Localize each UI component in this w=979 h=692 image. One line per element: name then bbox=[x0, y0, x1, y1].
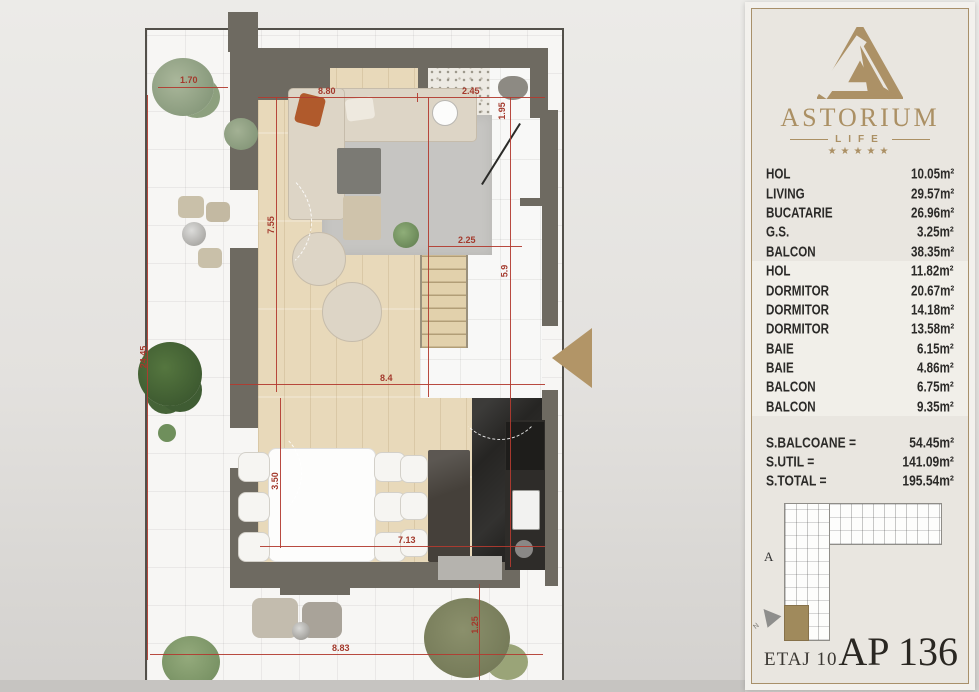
door-swing-arc bbox=[455, 350, 545, 440]
floor-label: ETAJ 10 bbox=[764, 649, 838, 671]
dimension-label: 7.13 bbox=[398, 535, 416, 545]
coffee-table-light bbox=[343, 196, 381, 240]
star-rating: ★★★★★ bbox=[752, 146, 968, 157]
entrance-arrow-icon bbox=[552, 328, 592, 388]
dimension-line bbox=[260, 546, 545, 547]
dimension-label: 8.83 bbox=[332, 643, 350, 653]
dimension-label: 3.50 bbox=[270, 472, 280, 490]
dimension-label: 5.9 bbox=[499, 265, 509, 278]
room-area: 14.18m² bbox=[911, 301, 954, 317]
room-area: 20.67m² bbox=[911, 282, 954, 298]
room-label: LIVING bbox=[766, 185, 805, 201]
wall bbox=[540, 110, 558, 206]
dimension-line bbox=[147, 95, 148, 660]
total-value: 195.54m² bbox=[902, 471, 954, 488]
dimension-label: 2.45 bbox=[462, 86, 480, 96]
armchair bbox=[322, 282, 382, 342]
dimension-label: 1.95 bbox=[497, 102, 507, 120]
dimension-label: 2.25 bbox=[458, 235, 476, 245]
total-label: S.TOTAL = bbox=[766, 471, 827, 488]
total-value: 54.45m² bbox=[909, 434, 954, 451]
wall bbox=[280, 585, 350, 595]
wall bbox=[330, 48, 548, 68]
rule-right bbox=[892, 139, 930, 140]
logo-triangle-icon bbox=[817, 27, 903, 99]
room-row: BALCON6.75m² bbox=[752, 377, 968, 396]
dimension-line bbox=[276, 97, 277, 392]
room-area: 26.96m² bbox=[911, 205, 954, 221]
room-area: 11.82m² bbox=[911, 263, 954, 279]
island-chair bbox=[400, 492, 428, 520]
dimension-line bbox=[428, 246, 522, 247]
room-area: 38.35m² bbox=[911, 243, 954, 259]
dimension-line bbox=[258, 97, 545, 98]
floorplan-page: 1.70 8.80 2.45 1.95 24.45 7.55 2.25 5.9 … bbox=[0, 0, 979, 692]
room-label: BALCON bbox=[766, 243, 816, 259]
dimension-line bbox=[158, 87, 228, 88]
room-label: BAIE bbox=[766, 360, 794, 376]
bathroom-sink bbox=[432, 100, 458, 126]
room-row: BALCON9.35m² bbox=[752, 397, 968, 416]
dimension-label: 1.25 bbox=[470, 616, 480, 634]
room-row: DORMITOR14.18m² bbox=[752, 300, 968, 319]
logo bbox=[752, 27, 968, 99]
dimension-line bbox=[150, 654, 543, 655]
stove bbox=[515, 540, 533, 558]
room-row: BAIE6.15m² bbox=[752, 339, 968, 358]
pillow bbox=[345, 96, 376, 122]
bush bbox=[424, 598, 510, 678]
room-row: HOL11.82m² bbox=[752, 261, 968, 280]
room-label: BAIE bbox=[766, 340, 794, 356]
wall bbox=[542, 206, 558, 326]
coffee-table-dark bbox=[337, 148, 381, 194]
floorplan-canvas: 1.70 8.80 2.45 1.95 24.45 7.55 2.25 5.9 … bbox=[0, 0, 745, 692]
total-row: S.BALCOANE =54.45m² bbox=[752, 433, 968, 452]
island-chair bbox=[400, 455, 428, 483]
room-row: LIVING29.57m² bbox=[752, 183, 968, 202]
room-row: BUCATARIE26.96m² bbox=[752, 203, 968, 222]
rule-left bbox=[790, 139, 828, 140]
room-label: HOL bbox=[766, 166, 791, 182]
dimension-line bbox=[510, 97, 511, 567]
total-label: S.BALCOANE = bbox=[766, 434, 856, 451]
room-row: BAIE4.86m² bbox=[752, 358, 968, 377]
north-arrow-icon bbox=[757, 603, 782, 628]
info-panel-frame: ASTORIUM LIFE ★★★★★ HOL10.05m² LIVING29.… bbox=[751, 8, 969, 684]
room-area: 9.35m² bbox=[917, 398, 954, 414]
door-swing-arc bbox=[200, 165, 312, 277]
apartment-label: AP 136 bbox=[838, 628, 958, 675]
brand-subtitle: LIFE bbox=[752, 134, 968, 145]
room-row: BALCON38.35m² bbox=[752, 242, 968, 261]
dimension-label: 24.45 bbox=[138, 346, 148, 369]
dimension-label: 8.4 bbox=[380, 373, 393, 383]
kitchen-sink bbox=[512, 490, 540, 530]
room-area: 4.86m² bbox=[917, 360, 954, 376]
room-label: DORMITOR bbox=[766, 282, 829, 298]
room-label: BUCATARIE bbox=[766, 205, 833, 221]
total-value: 141.09m² bbox=[902, 452, 954, 469]
room-group-1: HOL10.05m² LIVING29.57m² BUCATARIE26.96m… bbox=[752, 164, 968, 261]
total-label: S.UTIL = bbox=[766, 452, 814, 469]
dimension-label: 7.55 bbox=[266, 216, 276, 234]
tree bbox=[224, 118, 258, 150]
room-label: BALCON bbox=[766, 398, 816, 414]
wall bbox=[228, 12, 258, 52]
room-row: G.S.3.25m² bbox=[752, 222, 968, 241]
room-area: 13.58m² bbox=[911, 321, 954, 337]
brand-sub-label: LIFE bbox=[835, 134, 885, 145]
door-swing-arc bbox=[205, 425, 302, 522]
minimap-highlighted-unit bbox=[784, 605, 809, 641]
dimension-tick bbox=[417, 93, 418, 102]
dimension-label: 8.80 bbox=[318, 86, 336, 96]
total-row: S.UTIL =141.09m² bbox=[752, 452, 968, 471]
room-row: DORMITOR13.58m² bbox=[752, 319, 968, 338]
small-plant bbox=[158, 424, 176, 442]
dimension-line bbox=[428, 97, 429, 397]
dimension-line bbox=[479, 584, 480, 692]
brand-name: ASTORIUM bbox=[752, 103, 968, 133]
room-list: HOL10.05m² LIVING29.57m² BUCATARIE26.96m… bbox=[752, 164, 968, 416]
wall bbox=[520, 198, 558, 206]
room-area: 3.25m² bbox=[917, 224, 954, 240]
dimension-label: 1.70 bbox=[180, 75, 198, 85]
room-label: DORMITOR bbox=[766, 301, 829, 317]
room-group-2: HOL11.82m² DORMITOR20.67m² DORMITOR14.18… bbox=[752, 261, 968, 416]
dimension-line bbox=[230, 384, 545, 385]
total-row: S.TOTAL =195.54m² bbox=[752, 470, 968, 489]
room-area: 29.57m² bbox=[911, 185, 954, 201]
room-row: DORMITOR20.67m² bbox=[752, 280, 968, 299]
room-label: DORMITOR bbox=[766, 321, 829, 337]
dimension-line bbox=[280, 398, 281, 548]
room-row: HOL10.05m² bbox=[752, 164, 968, 183]
room-label: HOL bbox=[766, 263, 791, 279]
totals-section: S.BALCOANE =54.45m² S.UTIL =141.09m² S.T… bbox=[752, 433, 968, 489]
plant-pot bbox=[393, 222, 419, 248]
building-minimap: A N bbox=[752, 497, 968, 628]
entry-mat bbox=[438, 556, 502, 580]
terrace-table bbox=[292, 622, 310, 640]
dining-chair bbox=[238, 532, 270, 562]
room-area: 10.05m² bbox=[911, 166, 954, 182]
minimap-section-label: A bbox=[764, 549, 773, 565]
room-label: BALCON bbox=[766, 379, 816, 395]
floor-shadow bbox=[0, 680, 745, 692]
room-label: G.S. bbox=[766, 224, 789, 240]
wall bbox=[545, 420, 558, 586]
room-area: 6.75m² bbox=[917, 379, 954, 395]
room-area: 6.15m² bbox=[917, 340, 954, 356]
info-panel: ASTORIUM LIFE ★★★★★ HOL10.05m² LIVING29.… bbox=[745, 2, 975, 690]
